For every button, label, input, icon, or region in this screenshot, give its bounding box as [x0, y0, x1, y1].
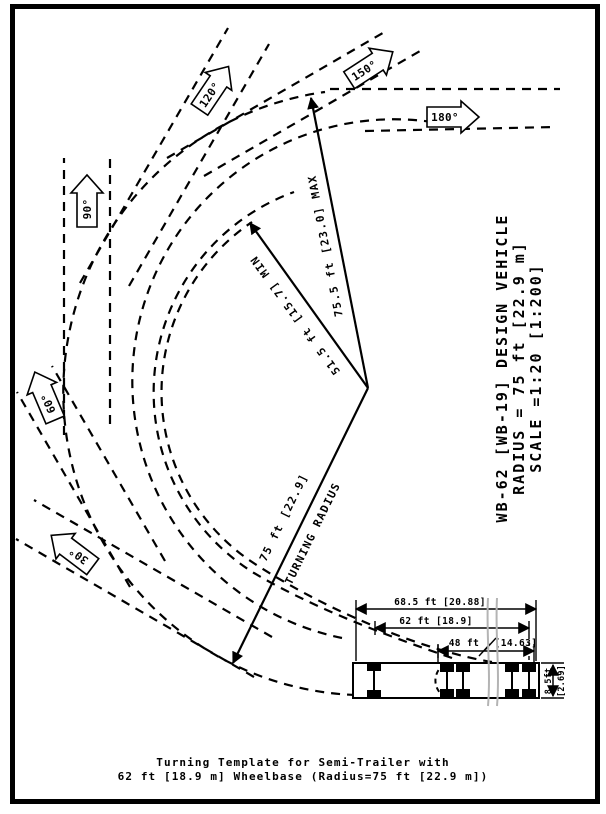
overall-length-text: 68.5 ft [20.88] — [394, 597, 486, 608]
caption: Turning Template for Semi-Trailer with 6… — [118, 756, 489, 783]
drive-wheel — [456, 663, 470, 672]
trailer-wheel — [505, 663, 519, 672]
drawing-sheet: 68.5 ft [20.88] 62 ft [18.9] 48 ft [14.6… — [0, 0, 606, 814]
wheelbase-text: 62 ft [18.9] — [399, 616, 472, 627]
angle-marker-150: 150° — [340, 38, 401, 93]
caption-line-2: 62 ft [18.9 m] Wheelbase (Radius=75 ft [… — [118, 770, 489, 783]
angle-marker-120: 120° — [186, 57, 242, 118]
exit60-inner-tangent — [52, 366, 165, 561]
min-radius-line — [250, 223, 368, 388]
title-line-3: SCALE =1:20 [1:200] — [527, 263, 545, 473]
trailer-wheel — [505, 689, 519, 698]
drive-wheel — [440, 689, 454, 698]
title-block: WB-62 [WB-19] DESIGN VEHICLE RADIUS = 75… — [493, 214, 545, 523]
width-m-text: [2.69] — [557, 665, 567, 697]
drive-wheel — [456, 689, 470, 698]
caption-line-1: Turning Template for Semi-Trailer with — [156, 756, 449, 769]
angle-marker-60: 60° — [20, 366, 70, 426]
kingpin-axle-m-text: [14.63] — [495, 638, 538, 649]
title-line-2: RADIUS = 75 ft [22.9 m] — [510, 241, 528, 495]
radius-lines: 75 ft [22.9] TURNING RADIUS 51.5 ft [15.… — [233, 98, 368, 663]
title-line-1: WB-62 [WB-19] DESIGN VEHICLE — [493, 214, 511, 523]
angle-marker-90: 90° — [71, 175, 103, 227]
steer-wheel-bottom — [367, 690, 381, 698]
angle-label: 180° — [431, 111, 459, 124]
rear-wheel-path-twin — [154, 192, 452, 658]
turning-radius-line — [233, 388, 368, 663]
angle-label: 90° — [81, 199, 94, 220]
exit30-inner-tangent — [34, 500, 272, 637]
drive-wheel — [440, 663, 454, 672]
steer-wheel-top — [367, 663, 381, 671]
turning-template-figure: 68.5 ft [20.88] 62 ft [18.9] 48 ft [14.6… — [0, 0, 606, 814]
vehicle-diagram — [353, 645, 539, 698]
turning-path-curves — [16, 28, 560, 695]
width-ft-text: 8.5ft — [544, 668, 554, 695]
kingpin-axle-ft-text: 48 ft — [449, 638, 480, 649]
